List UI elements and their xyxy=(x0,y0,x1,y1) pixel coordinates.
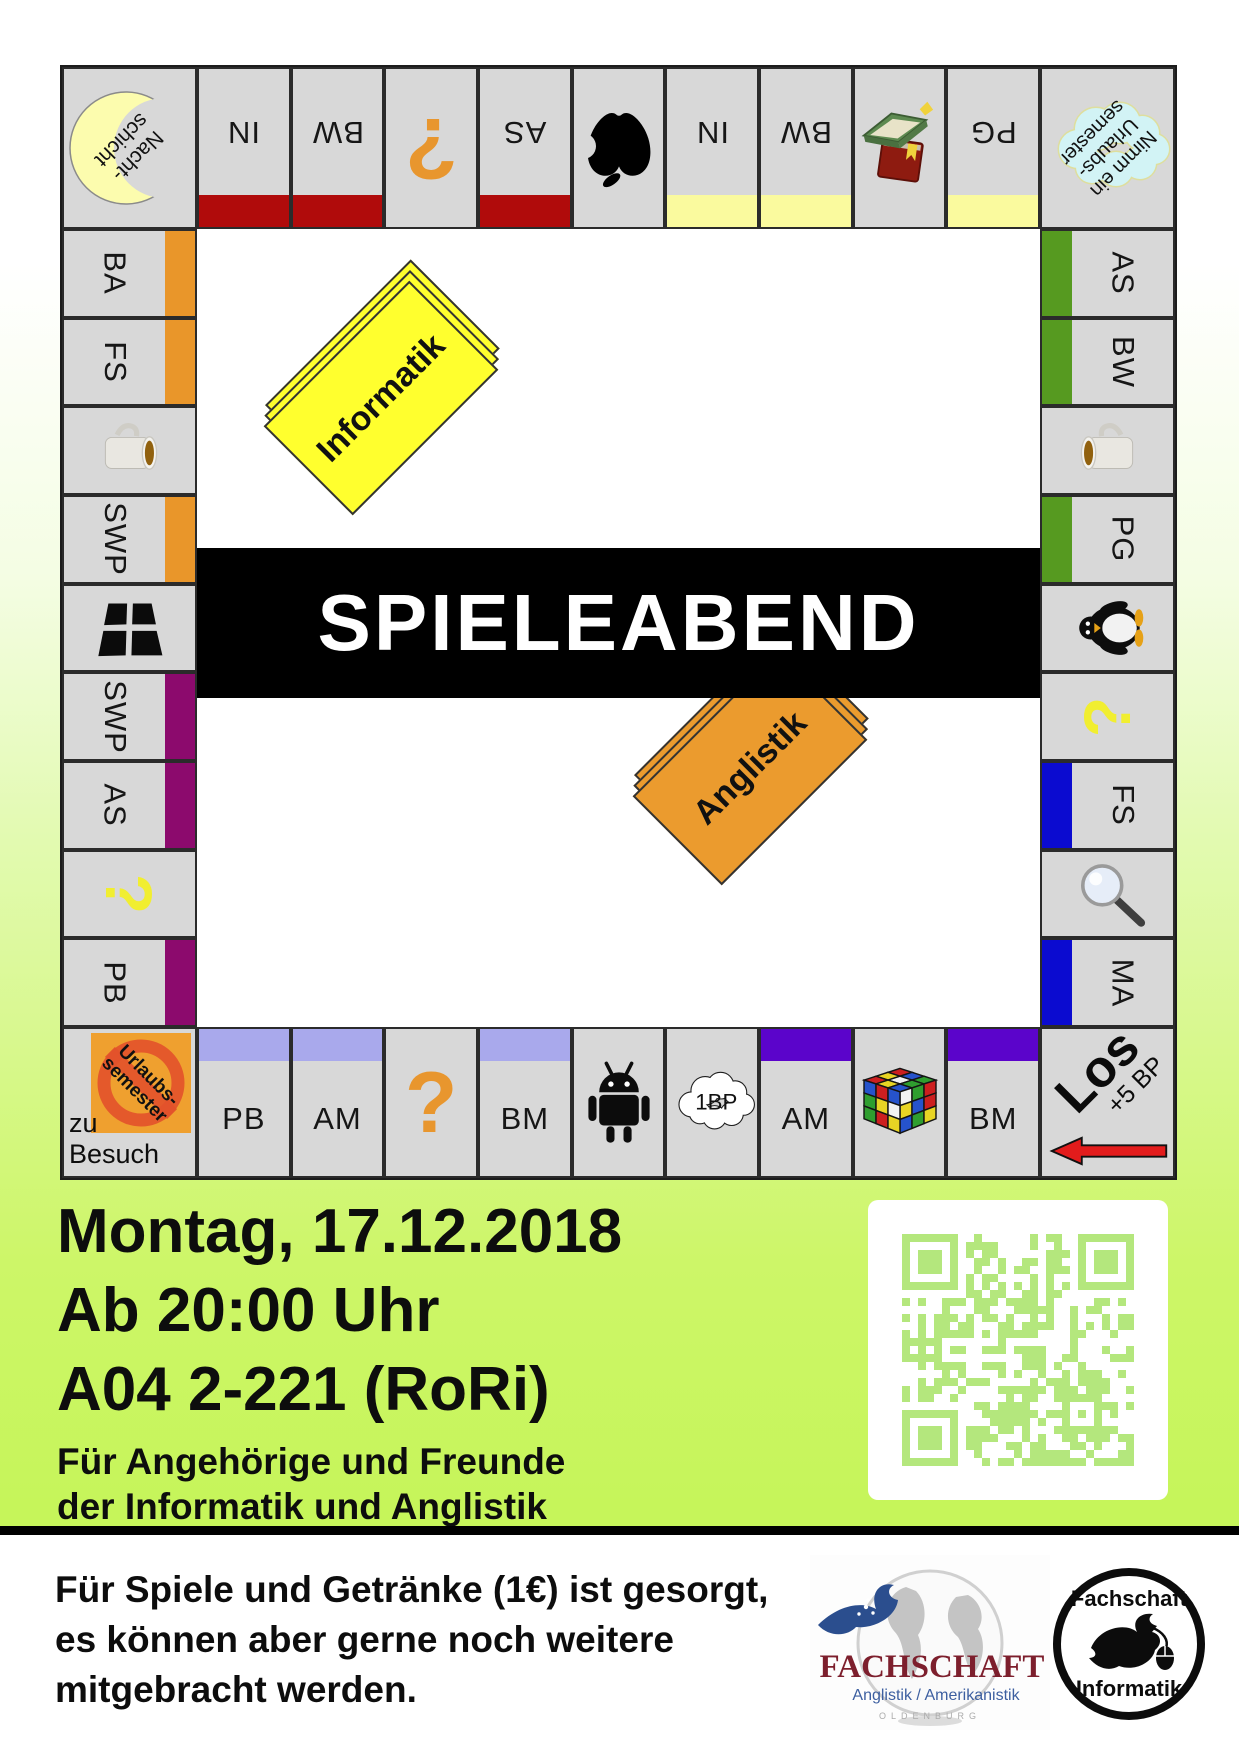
color-bar xyxy=(165,763,195,848)
cell-label: PB xyxy=(96,961,132,1004)
anglistik-logo-subtitle: Anglistik / Amerikanistik xyxy=(852,1687,1020,1704)
color-bar xyxy=(1042,320,1072,405)
cell-as: AS xyxy=(1040,229,1175,318)
cell-as: AS xyxy=(62,761,197,850)
dove-with-mouse-icon xyxy=(1079,1610,1179,1682)
cell-label: SWP xyxy=(97,503,133,577)
event-audience-2: der Informatik und Anglistik xyxy=(57,1484,622,1529)
cell-label: BW xyxy=(1105,336,1141,388)
cell-label: FS xyxy=(97,341,133,383)
window-icon xyxy=(94,592,166,664)
board-row-top: INBW?ASINBWPG xyxy=(197,67,1040,229)
cell-label: BM xyxy=(501,1101,550,1137)
cell-label: MA xyxy=(1105,958,1141,1007)
board-column-right: ASBWPG?FSMA xyxy=(1040,229,1175,1027)
android-icon xyxy=(574,1058,664,1148)
title-banner: SPIELEABEND xyxy=(197,548,1040,698)
cell-window xyxy=(62,584,197,673)
cell-am: AM xyxy=(291,1027,385,1178)
anglistik-logo-graphic: FACHSCHAFT Anglistik / Amerikanistik OLD… xyxy=(810,1555,1050,1730)
cell-label-wrap: IN xyxy=(199,69,289,195)
cell-label: SWP xyxy=(97,680,133,754)
cell-label: AM xyxy=(313,1101,362,1137)
event-location: A04 2-221 (RoRi) xyxy=(57,1350,622,1429)
color-bar xyxy=(1042,940,1072,1025)
cell-label-wrap: SWP xyxy=(64,674,165,759)
cell-label-wrap: AS xyxy=(480,69,570,195)
apple-icon xyxy=(573,102,665,194)
direction-arrow-icon xyxy=(1048,1134,1170,1168)
cell-in: IN xyxy=(665,67,759,229)
cell-as: AS xyxy=(478,67,572,229)
color-bar xyxy=(165,674,195,759)
cell-label: BA xyxy=(96,252,132,295)
fachschaft-anglistik-logo: FACHSCHAFT Anglistik / Amerikanistik OLD… xyxy=(810,1555,1050,1730)
cell-label: PB xyxy=(222,1101,265,1137)
footer-text: Für Spiele und Getränke (1€) ist gesorgt… xyxy=(55,1565,768,1715)
board-center: Informatik Anglistik SPIELEABEND xyxy=(197,229,1040,1027)
cell-label-wrap: MA xyxy=(1072,940,1173,1025)
zu-besuch-label: zu Besuch xyxy=(69,1108,195,1170)
cell-label-wrap: IN xyxy=(667,69,757,195)
cell-question-orange: ? xyxy=(384,67,478,229)
cell-label: AS xyxy=(503,114,546,150)
cell-question-orange: ? xyxy=(384,1027,478,1178)
poster-page: Nacht- schicht Nimm ein Urlaubs- xyxy=(0,0,1239,1754)
cell-swp: SWP xyxy=(62,495,197,584)
cell-label-wrap: BW xyxy=(761,69,851,195)
cell-label: IN xyxy=(696,114,729,150)
qr-code xyxy=(868,1200,1168,1500)
fachschaft-informatik-logo: Fachschaft Informatik xyxy=(1053,1568,1205,1720)
color-bar xyxy=(165,497,195,582)
cell-ba: BA xyxy=(62,229,197,318)
color-bar xyxy=(165,320,195,405)
cell-bw: BW xyxy=(759,67,853,229)
cell-label-wrap: BM xyxy=(480,1061,570,1176)
informatik-logo-bottom-label: Informatik xyxy=(1061,1676,1197,1702)
corner-los: Los +5 BP xyxy=(1040,1027,1175,1178)
event-time: Ab 20:00 Uhr xyxy=(57,1271,622,1350)
svg-text:1BP: 1BP xyxy=(695,1089,737,1114)
cell-label-wrap: SWP xyxy=(64,497,165,582)
cell-label-wrap: PG xyxy=(1072,497,1173,582)
magnifier-icon xyxy=(1072,858,1144,930)
cell-am: AM xyxy=(759,1027,853,1178)
footer-band: Für Spiele und Getränke (1€) ist gesorgt… xyxy=(0,1535,1239,1754)
color-bar xyxy=(1042,763,1072,848)
cell-label-wrap: AS xyxy=(1072,231,1173,316)
cell-ma: MA xyxy=(1040,938,1175,1027)
color-bar xyxy=(948,195,1038,227)
cloud-1bp-icon: 1BP xyxy=(667,1060,757,1146)
cell-bw: BW xyxy=(291,67,385,229)
cell-label: AS xyxy=(1104,252,1140,295)
cell-pg: PG xyxy=(946,67,1040,229)
cell-label: AS xyxy=(96,784,132,827)
cell-label-wrap: FS xyxy=(1072,763,1173,848)
cell-label: BW xyxy=(780,114,832,150)
event-date: Montag, 17.12.2018 xyxy=(57,1192,622,1271)
cell-label-wrap: AM xyxy=(293,1061,383,1176)
event-details: Montag, 17.12.2018 Ab 20:00 Uhr A04 2-22… xyxy=(57,1192,622,1529)
corner-urlaubssemester-nimm: Nimm ein Urlaubs- semester xyxy=(1040,67,1175,229)
anglistik-logo-title: FACHSCHAFT xyxy=(820,1649,1045,1685)
informatik-logo-top-label: Fachschaft xyxy=(1061,1586,1197,1612)
cell-label: BW xyxy=(312,114,364,150)
cell-label: PG xyxy=(1104,516,1140,563)
informatik-card: Informatik xyxy=(264,281,499,516)
color-bar xyxy=(165,231,195,316)
color-bar xyxy=(480,195,570,227)
cell-label-wrap: FS xyxy=(64,320,165,405)
cell-label: AM xyxy=(782,1101,831,1137)
cell-swp: SWP xyxy=(62,672,197,761)
event-audience-1: Für Angehörige und Freunde xyxy=(57,1439,622,1484)
cell-bm: BM xyxy=(478,1027,572,1178)
color-bar xyxy=(293,195,383,227)
cell-label: FS xyxy=(1105,785,1141,827)
cell-bw: BW xyxy=(1040,318,1175,407)
game-board: Nacht- schicht Nimm ein Urlaubs- xyxy=(60,65,1177,1180)
poster-title: SPIELEABEND xyxy=(318,577,920,669)
question-yellow-icon: ? xyxy=(96,874,162,914)
cell-label-wrap: BW xyxy=(1072,320,1173,405)
color-bar xyxy=(667,195,757,227)
cell-label-wrap: PB xyxy=(64,940,165,1025)
cell-label-wrap: BA xyxy=(64,231,165,316)
cell-fs: FS xyxy=(1040,761,1175,850)
question-orange-icon: ? xyxy=(405,105,458,191)
penguin-icon xyxy=(1072,592,1144,664)
cell-label-wrap: PG xyxy=(948,69,1038,195)
cell-cloud-1bp: 1BP xyxy=(665,1027,759,1178)
color-bar xyxy=(293,1029,383,1061)
color-bar xyxy=(761,1029,851,1061)
cell-label-wrap: AS xyxy=(64,763,165,848)
cell-mug xyxy=(1040,406,1175,495)
rubik-icon xyxy=(855,1063,945,1142)
color-bar xyxy=(199,1029,289,1061)
books-icon xyxy=(854,102,946,194)
cell-pb: PB xyxy=(62,938,197,1027)
cell-label-wrap: AM xyxy=(761,1061,851,1176)
board-row-bottom: PBAM?BM1BPAMBM xyxy=(197,1027,1040,1178)
cell-rubik xyxy=(853,1027,947,1178)
cell-label-wrap: PB xyxy=(199,1061,289,1176)
cell-pb: PB xyxy=(197,1027,291,1178)
cell-label-wrap: BW xyxy=(293,69,383,195)
color-bar xyxy=(480,1029,570,1061)
cell-question-yellow: ? xyxy=(1040,672,1175,761)
cell-question-yellow: ? xyxy=(62,850,197,939)
color-bar xyxy=(1042,231,1072,316)
question-orange-icon: ? xyxy=(405,1060,458,1146)
cell-label-wrap: BM xyxy=(948,1061,1038,1176)
cell-pg: PG xyxy=(1040,495,1175,584)
cell-label: BM xyxy=(969,1101,1018,1137)
separator-line xyxy=(0,1526,1239,1535)
question-yellow-icon: ? xyxy=(1074,697,1140,737)
color-bar xyxy=(1042,497,1072,582)
color-bar xyxy=(761,195,851,227)
cell-label: IN xyxy=(227,114,260,150)
color-bar xyxy=(165,940,195,1025)
cell-apple xyxy=(572,67,666,229)
color-bar xyxy=(199,195,289,227)
color-bar xyxy=(948,1029,1038,1061)
board-column-left: BAFSSWPSWPAS?PB xyxy=(62,229,197,1027)
cell-bm: BM xyxy=(946,1027,1040,1178)
mug-icon xyxy=(94,418,166,483)
cell-android xyxy=(572,1027,666,1178)
cell-in: IN xyxy=(197,67,291,229)
anglistik-logo-footnote: OLDENBURG xyxy=(879,1711,981,1721)
cell-books xyxy=(853,67,947,229)
mug-icon xyxy=(1072,418,1144,483)
cell-mug xyxy=(62,406,197,495)
corner-nachtschicht: Nacht- schicht xyxy=(62,67,197,229)
cell-penguin xyxy=(1040,584,1175,673)
corner-urlaubssemester-besuch: Urlaubs- semester zu Besuch xyxy=(62,1027,197,1178)
cell-magnifier xyxy=(1040,850,1175,939)
cell-fs: FS xyxy=(62,318,197,407)
cell-label: PG xyxy=(970,114,1017,150)
